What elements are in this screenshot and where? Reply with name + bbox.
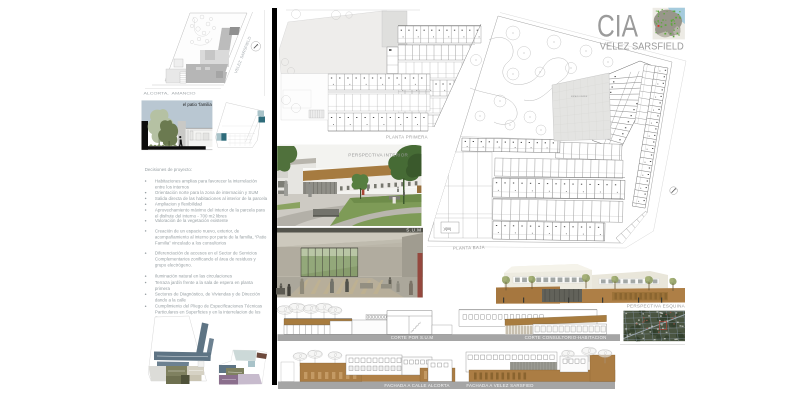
svg-text:Ampliacion y flexibilidad: Ampliacion y flexibilidad	[155, 202, 203, 207]
svg-text:ESPACIO VERDE: ESPACIO VERDE	[571, 95, 588, 98]
svg-text:Aprovechamiento máximo del int: Aprovechamiento máximo del interior de l…	[155, 207, 266, 212]
svg-text:Complementarios zonificando el: Complementarios zonificando el área de r…	[155, 257, 257, 262]
svg-text:PLANTA BAJA: PLANTA BAJA	[453, 245, 485, 251]
svg-text:CIA: CIA	[597, 7, 638, 43]
svg-text:Diferenciación de accesos en e: Diferenciación de accesos en el Sector d…	[155, 251, 258, 256]
svg-text:FACHADA A VELEZ SARSFIED: FACHADA A VELEZ SARSFIED	[466, 383, 533, 388]
svg-text:entre los internos: entre los internos	[155, 184, 190, 189]
svg-text:grupo electrógeno.: grupo electrógeno.	[155, 263, 192, 268]
svg-text:dando a la calle: dando a la calle	[155, 298, 187, 303]
svg-text:el patio ‘familia: el patio ‘familia	[183, 102, 213, 107]
svg-text:CORTE POR S.U.M: CORTE POR S.U.M	[391, 335, 434, 340]
svg-text:Valoración de la vegetación ex: Valoración de la vegetación existente	[155, 218, 229, 223]
svg-text:Iluminación natural en las cir: Iluminación natural en las circulaciones	[155, 274, 233, 279]
svg-text:PERSPECTIVA INTERIOR: PERSPECTIVA INTERIOR	[348, 153, 408, 158]
svg-text:PERSPECTIVA ESQUINA: PERSPECTIVA ESQUINA	[627, 303, 686, 308]
svg-text:Particulares en Superficies y: Particulares en Superficies y en la inte…	[155, 310, 261, 315]
svg-text:Familia” vinculado a los consu: Familia” vinculado a los consultorios	[155, 240, 227, 245]
svg-text:)I[III(: )I[III(	[444, 227, 452, 231]
svg-text:CORTE CONSULTORIO-HABITACION: CORTE CONSULTORIO-HABITACION	[525, 335, 607, 340]
svg-text:Cumplimiento del Pliego de Esp: Cumplimiento del Pliego de Especificacio…	[155, 304, 263, 309]
svg-text:ALCORTA, AMANCIO: ALCORTA, AMANCIO	[144, 90, 196, 95]
svg-text:FACHADA A CALLE ALCORTA: FACHADA A CALLE ALCORTA	[384, 383, 449, 388]
svg-text:PLANTA PRIMERA: PLANTA PRIMERA	[386, 135, 428, 140]
svg-text:primera: primera	[155, 286, 171, 291]
svg-text:Habitaciones amplias para favo: Habitaciones amplias para favorecer la i…	[155, 178, 258, 183]
svg-text:acompañamiento al interno por: acompañamiento al interno por parte de l…	[155, 234, 267, 239]
svg-text:Salida directa de las habitaci: Salida directa de las habitaciones al in…	[155, 196, 268, 201]
svg-text:Terraza jardín frente a la sal: Terraza jardín frente a la sala de esper…	[155, 280, 253, 285]
svg-text:Orientación norte para la zona: Orientación norte para la zona de intern…	[155, 190, 259, 195]
svg-text:S.U.M: S.U.M	[406, 227, 421, 232]
svg-text:Creación de un espacio nuevo,: Creación de un espacio nuevo, exterior, …	[155, 228, 240, 233]
svg-text:Decisiones de proyecto:: Decisiones de proyecto:	[145, 167, 192, 172]
svg-text:Sectores de Diagnóstico, de Vi: Sectores de Diagnóstico, de Viviendas y …	[155, 292, 261, 297]
svg-text:VELEZ SARSFIELD: VELEZ SARSFIELD	[600, 41, 684, 52]
